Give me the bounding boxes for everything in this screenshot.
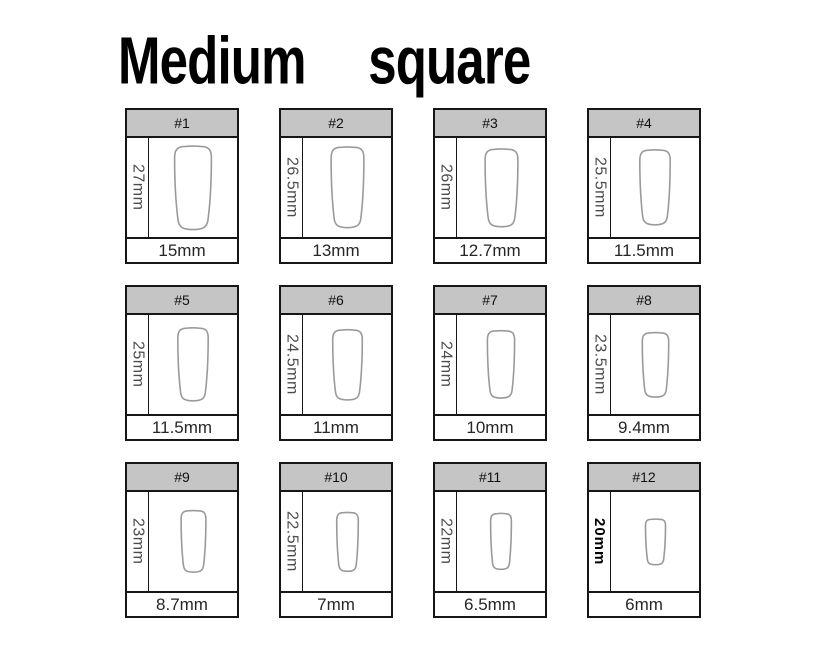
nail-shape-icon <box>636 148 674 227</box>
length-column: 20mm <box>589 492 611 591</box>
card-body: 27mm <box>127 138 237 237</box>
size-card: #1 27mm 15mm <box>125 108 239 264</box>
card-header: #12 <box>589 464 699 492</box>
nail-length-label: 24mm <box>437 341 455 387</box>
nail-length-label: 25mm <box>129 341 147 387</box>
nail-shape-icon <box>174 326 212 403</box>
nail-width-label: 8.7mm <box>156 595 208 615</box>
length-column: 24.5mm <box>281 315 303 414</box>
width-row: 11mm <box>281 414 391 439</box>
size-card-grid: #1 27mm 15mm #2 26.5mm <box>125 108 701 618</box>
shape-area <box>611 138 699 237</box>
width-row: 10mm <box>435 414 545 439</box>
length-column: 22mm <box>435 492 457 591</box>
width-row: 13mm <box>281 237 391 262</box>
length-column: 26.5mm <box>281 138 303 237</box>
shape-area <box>303 315 391 414</box>
card-header: #7 <box>435 287 545 315</box>
size-card: #3 26mm 12.7mm <box>433 108 547 264</box>
shape-area <box>611 315 699 414</box>
width-row: 11.5mm <box>127 414 237 439</box>
card-body: 22.5mm <box>281 492 391 591</box>
size-card: #2 26.5mm 13mm <box>279 108 393 264</box>
size-card: #12 20mm 6mm <box>587 462 701 618</box>
card-header: #3 <box>435 110 545 138</box>
shape-area <box>611 492 699 591</box>
card-header: #10 <box>281 464 391 492</box>
card-number-label: #12 <box>632 469 655 485</box>
length-column: 26mm <box>435 138 457 237</box>
length-column: 24mm <box>435 315 457 414</box>
nail-width-label: 9.4mm <box>618 418 670 438</box>
nail-length-label: 23mm <box>129 518 147 564</box>
card-body: 23.5mm <box>589 315 699 414</box>
length-column: 22.5mm <box>281 492 303 591</box>
width-row: 6mm <box>589 591 699 616</box>
size-card: #8 23.5mm 9.4mm <box>587 285 701 441</box>
width-row: 11.5mm <box>589 237 699 262</box>
length-column: 23.5mm <box>589 315 611 414</box>
nail-width-label: 13mm <box>312 241 359 261</box>
card-header: #11 <box>435 464 545 492</box>
size-card: #11 22mm 6.5mm <box>433 462 547 618</box>
shape-area <box>457 138 545 237</box>
nail-shape-icon <box>639 331 672 399</box>
nail-width-label: 10mm <box>466 418 513 438</box>
card-header: #1 <box>127 110 237 138</box>
nail-width-label: 6mm <box>625 595 663 615</box>
nail-length-label: 27mm <box>129 164 147 210</box>
length-column: 23mm <box>127 492 149 591</box>
nail-length-label: 26mm <box>437 164 455 210</box>
card-number-label: #4 <box>636 115 652 131</box>
nail-shape-icon <box>178 509 209 574</box>
card-header: #9 <box>127 464 237 492</box>
length-column: 25.5mm <box>589 138 611 237</box>
card-number-label: #2 <box>328 115 344 131</box>
nail-shape-icon <box>334 511 361 573</box>
width-row: 7mm <box>281 591 391 616</box>
card-header: #4 <box>589 110 699 138</box>
card-number-label: #10 <box>324 469 347 485</box>
shape-area <box>303 138 391 237</box>
nail-shape-icon <box>484 329 518 400</box>
size-card: #10 22.5mm 7mm <box>279 462 393 618</box>
width-row: 9.4mm <box>589 414 699 439</box>
card-body: 25mm <box>127 315 237 414</box>
page-title: Medium square <box>118 22 530 99</box>
size-card: #6 24.5mm 11mm <box>279 285 393 441</box>
card-header: #5 <box>127 287 237 315</box>
width-row: 15mm <box>127 237 237 262</box>
nail-width-label: 12.7mm <box>459 241 520 261</box>
nail-width-label: 11.5mm <box>152 418 212 438</box>
nail-length-label: 26.5mm <box>283 157 301 218</box>
nail-shape-icon <box>327 145 368 230</box>
size-card: #9 23mm 8.7mm <box>125 462 239 618</box>
card-number-label: #9 <box>174 469 190 485</box>
size-card: #4 25.5mm 11.5mm <box>587 108 701 264</box>
size-chart-page: Medium square #1 27mm 15mm #2 26.5mm <box>0 0 830 654</box>
card-number-label: #8 <box>636 292 652 308</box>
nail-width-label: 15mm <box>158 241 205 261</box>
card-header: #2 <box>281 110 391 138</box>
nail-length-label: 20mm <box>591 518 608 565</box>
width-row: 12.7mm <box>435 237 545 262</box>
card-header: #6 <box>281 287 391 315</box>
shape-area <box>457 492 545 591</box>
nail-width-label: 11.5mm <box>614 241 674 261</box>
shape-area <box>303 492 391 591</box>
card-body: 22mm <box>435 492 545 591</box>
nail-shape-icon <box>481 147 522 229</box>
nail-shape-icon <box>643 518 668 566</box>
nail-length-label: 25.5mm <box>591 157 609 218</box>
card-number-label: #1 <box>174 115 190 131</box>
width-row: 8.7mm <box>127 591 237 616</box>
card-number-label: #5 <box>174 292 190 308</box>
nail-shape-icon <box>488 512 514 571</box>
nail-width-label: 7mm <box>317 595 355 615</box>
nail-length-label: 23.5mm <box>591 334 609 395</box>
shape-area <box>457 315 545 414</box>
card-number-label: #3 <box>482 115 498 131</box>
card-number-label: #11 <box>479 469 501 485</box>
length-column: 27mm <box>127 138 149 237</box>
card-body: 26.5mm <box>281 138 391 237</box>
card-header: #8 <box>589 287 699 315</box>
nail-width-label: 11mm <box>313 418 359 438</box>
shape-area <box>149 138 237 237</box>
size-card: #5 25mm 11.5mm <box>125 285 239 441</box>
nail-width-label: 6.5mm <box>464 595 516 615</box>
nail-shape-icon <box>170 144 216 232</box>
nail-length-label: 22mm <box>437 518 455 564</box>
width-row: 6.5mm <box>435 591 545 616</box>
card-number-label: #6 <box>328 292 344 308</box>
shape-area <box>149 315 237 414</box>
nail-length-label: 22.5mm <box>283 511 301 572</box>
nail-length-label: 24.5mm <box>283 334 301 395</box>
card-body: 23mm <box>127 492 237 591</box>
shape-area <box>149 492 237 591</box>
size-card: #7 24mm 10mm <box>433 285 547 441</box>
card-body: 26mm <box>435 138 545 237</box>
card-body: 24.5mm <box>281 315 391 414</box>
card-body: 20mm <box>589 492 699 591</box>
length-column: 25mm <box>127 315 149 414</box>
card-body: 25.5mm <box>589 138 699 237</box>
card-number-label: #7 <box>482 292 498 308</box>
card-body: 24mm <box>435 315 545 414</box>
nail-shape-icon <box>329 328 366 402</box>
